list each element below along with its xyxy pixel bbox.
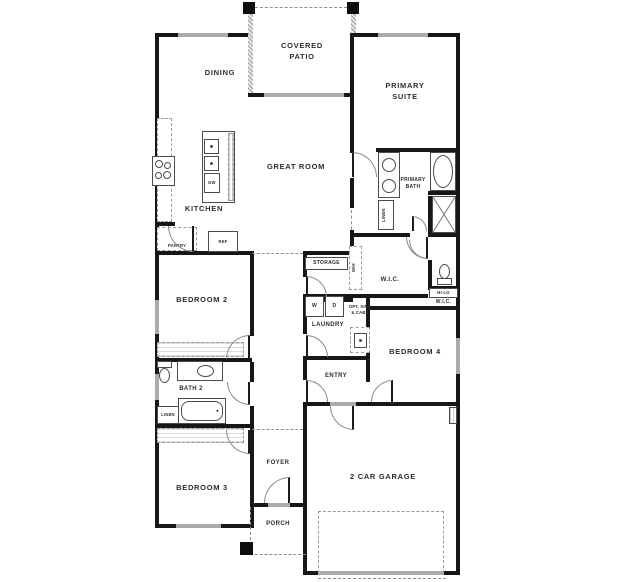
faucet-dot	[210, 145, 213, 148]
sink-icon	[382, 158, 396, 172]
washer-label: W	[305, 303, 324, 310]
toilet-tank	[157, 361, 172, 368]
bedroom4-door	[371, 380, 393, 402]
sink-icon	[197, 365, 214, 377]
garage-entry-door	[330, 406, 354, 430]
window	[456, 338, 460, 374]
shower-door	[412, 216, 427, 231]
water-closet-door	[409, 240, 428, 259]
bedroom2-door	[226, 335, 250, 359]
linen-label: LINEN	[381, 202, 391, 228]
bathtub-basin	[433, 155, 453, 188]
linen-bath2-label: LINEN	[157, 412, 179, 418]
dishwasher-label: DW	[204, 180, 220, 186]
laundry-door	[306, 335, 328, 357]
burner-icon	[155, 172, 162, 179]
sliding-door	[264, 93, 344, 97]
burner-icon	[164, 162, 171, 169]
water-heater-label: W/H	[351, 250, 360, 286]
great-room-label: GREAT ROOM	[266, 162, 326, 173]
entry-label: ENTRY	[318, 372, 354, 381]
front-door	[264, 477, 290, 503]
dryer-label: D	[325, 303, 344, 310]
porch-label: PORCH	[257, 520, 299, 529]
foyer-label: FOYER	[256, 459, 300, 468]
toilet-tank	[437, 278, 452, 285]
storage-label: STORAGE	[305, 260, 348, 267]
toilet-icon	[439, 264, 450, 279]
wall	[428, 233, 460, 237]
kitchen-label: KITCHEN	[180, 204, 228, 215]
storage-door	[306, 276, 327, 297]
burner-icon	[155, 160, 163, 168]
opening-dashed	[351, 210, 352, 230]
faucet-dot	[210, 162, 213, 165]
garage-door	[318, 571, 444, 575]
wall	[350, 178, 354, 208]
water-heater-icon	[449, 407, 457, 424]
wall	[428, 260, 432, 286]
dining-label: DINING	[194, 68, 246, 79]
faucet-dot	[359, 339, 362, 342]
door-threshold	[268, 503, 290, 507]
ceiling-break-dashed	[252, 429, 303, 430]
entry-hall-door	[306, 380, 328, 402]
wall	[350, 233, 410, 237]
wall	[250, 503, 268, 507]
patio-wall	[248, 14, 253, 93]
burner-icon	[163, 171, 171, 179]
sink-icon	[382, 179, 396, 193]
primary-suite-door	[352, 152, 377, 177]
bath2-door	[227, 382, 250, 405]
opt-sink-label: OPT. SINK & CABS	[347, 304, 373, 315]
wall	[303, 358, 307, 380]
wall	[350, 33, 354, 153]
porch-post	[240, 542, 253, 555]
patio-post	[243, 2, 255, 14]
bedroom4-label: BEDROOM 4	[384, 347, 446, 358]
wic-secondary-label: W.I.C.	[429, 299, 458, 306]
wall	[250, 251, 254, 336]
primary-suite-label: PRIMARY SUITE	[378, 81, 432, 103]
wall	[303, 251, 352, 255]
covered-patio-label: COVERED PATIO	[274, 41, 330, 63]
bedroom3-label: BEDROOM 3	[172, 483, 232, 494]
patio-edge-dashed	[255, 7, 347, 8]
tub-faucet-icon: ◄	[212, 408, 222, 414]
floor-plan: DW PANTRY REF LINEN STORAGE W/H W.I.C. H…	[0, 0, 617, 582]
wall	[366, 306, 460, 310]
wall	[303, 402, 460, 406]
window	[155, 300, 159, 334]
patio-wall	[351, 14, 356, 33]
window	[176, 524, 221, 528]
driveway-dashed	[318, 578, 446, 579]
window	[178, 33, 228, 37]
ceiling-break-dashed	[252, 253, 303, 254]
refrigerator-label: REF	[208, 239, 238, 245]
bedroom3-door	[226, 430, 250, 454]
garage-label: 2 CAR GARAGE	[346, 472, 420, 483]
laundry-label: LAUNDRY	[300, 321, 356, 330]
window	[378, 33, 428, 37]
wall	[303, 402, 307, 575]
wall	[155, 33, 159, 528]
wall	[428, 191, 460, 195]
primary-bath-label: PRIMARY BATH	[398, 177, 428, 190]
wall	[290, 503, 305, 507]
island-counter-edge	[228, 133, 234, 201]
bedroom2-label: BEDROOM 2	[172, 295, 232, 306]
garage-storage-option	[318, 511, 444, 573]
hi-lo-label: HI-LO	[429, 290, 458, 296]
toilet-icon	[159, 368, 170, 383]
porch-edge-dashed	[250, 554, 306, 555]
patio-post	[347, 2, 359, 14]
bath2-label: BATH 2	[172, 385, 210, 394]
shower-icon	[432, 196, 456, 233]
wic-primary-label: W.I.C.	[370, 276, 410, 285]
wall	[250, 362, 254, 382]
